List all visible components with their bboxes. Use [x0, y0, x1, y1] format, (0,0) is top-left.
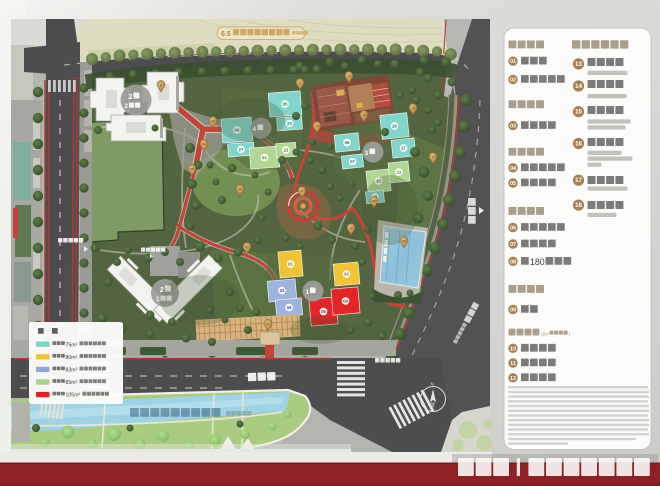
svg-text:1: 1	[306, 289, 310, 296]
svg-text:80m²: 80m²	[66, 355, 78, 361]
svg-text:18: 18	[575, 202, 583, 209]
svg-text:(24: (24	[541, 331, 548, 337]
svg-text:08: 08	[372, 200, 376, 204]
svg-text:03: 03	[510, 124, 516, 130]
svg-text:14: 14	[315, 125, 319, 129]
svg-text:10: 10	[510, 346, 516, 352]
svg-text:17: 17	[575, 177, 583, 184]
svg-text:11: 11	[159, 84, 163, 88]
svg-text:16: 16	[362, 114, 366, 118]
svg-text:11: 11	[510, 361, 516, 367]
svg-text:180: 180	[530, 257, 545, 267]
svg-text:14: 14	[575, 83, 583, 90]
svg-text:05: 05	[510, 181, 516, 187]
svg-text:3: 3	[365, 150, 369, 157]
svg-text:13: 13	[575, 61, 583, 68]
svg-text:105m²: 105m²	[66, 393, 81, 399]
svg-text:09: 09	[402, 240, 406, 244]
svg-text:12: 12	[510, 376, 516, 382]
svg-text:07: 07	[510, 242, 516, 248]
svg-text:13: 13	[347, 75, 351, 79]
svg-text:02: 02	[510, 78, 516, 84]
svg-text:01: 01	[510, 59, 516, 65]
svg-text:05: 05	[282, 101, 288, 106]
svg-text:22: 22	[283, 147, 289, 152]
svg-text:06: 06	[238, 188, 242, 192]
svg-text:01: 01	[262, 155, 268, 160]
svg-text:6.5: 6.5	[221, 31, 231, 38]
svg-text:16: 16	[575, 141, 583, 148]
svg-text:83m²: 83m²	[66, 368, 78, 374]
svg-text:75m²: 75m²	[66, 342, 78, 348]
svg-text:07: 07	[300, 190, 304, 194]
svg-text:11: 11	[298, 82, 302, 86]
svg-text:02: 02	[245, 246, 249, 250]
svg-text:N: N	[431, 382, 434, 387]
svg-text:06: 06	[510, 226, 516, 232]
svg-text:01: 01	[266, 323, 270, 327]
svg-text:23: 23	[287, 121, 293, 126]
svg-text:04: 04	[202, 143, 206, 147]
svg-text:05: 05	[190, 168, 194, 172]
svg-text:15: 15	[575, 109, 583, 116]
svg-text:12: 12	[349, 227, 353, 231]
svg-text:85m²: 85m²	[66, 380, 78, 386]
svg-text:27: 27	[238, 147, 244, 152]
svg-text:08: 08	[510, 259, 516, 265]
svg-text:04: 04	[510, 166, 517, 172]
svg-text:18: 18	[411, 107, 415, 111]
svg-text:2: 2	[129, 94, 133, 101]
svg-text:09: 09	[510, 308, 516, 314]
svg-text:03: 03	[211, 120, 215, 124]
svg-text:17: 17	[431, 156, 435, 160]
